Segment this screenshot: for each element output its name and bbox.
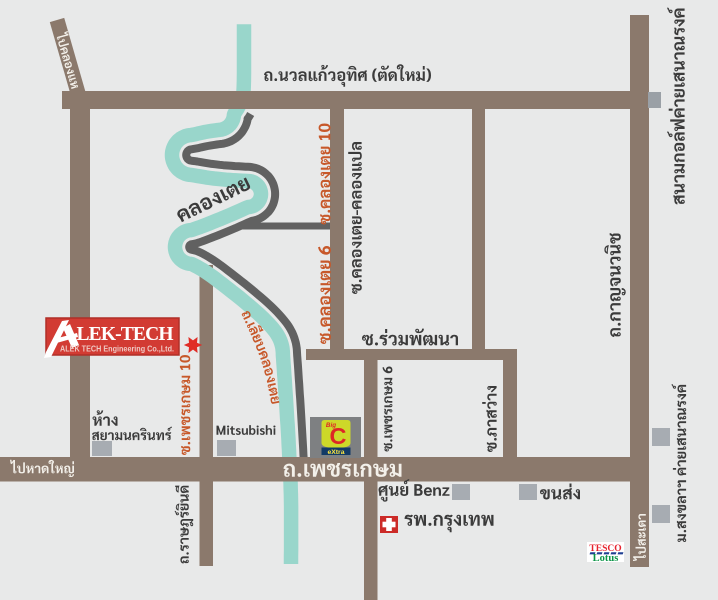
svg-text:LEK-TECH: LEK-TECH <box>77 324 174 345</box>
svg-text:Big: Big <box>326 422 336 429</box>
svg-text:eXtra: eXtra <box>327 449 344 456</box>
svg-text:ALEK TECH Engineering Co.,Ltd.: ALEK TECH Engineering Co.,Ltd. <box>60 345 174 354</box>
svg-text:Lotus: Lotus <box>593 553 619 564</box>
